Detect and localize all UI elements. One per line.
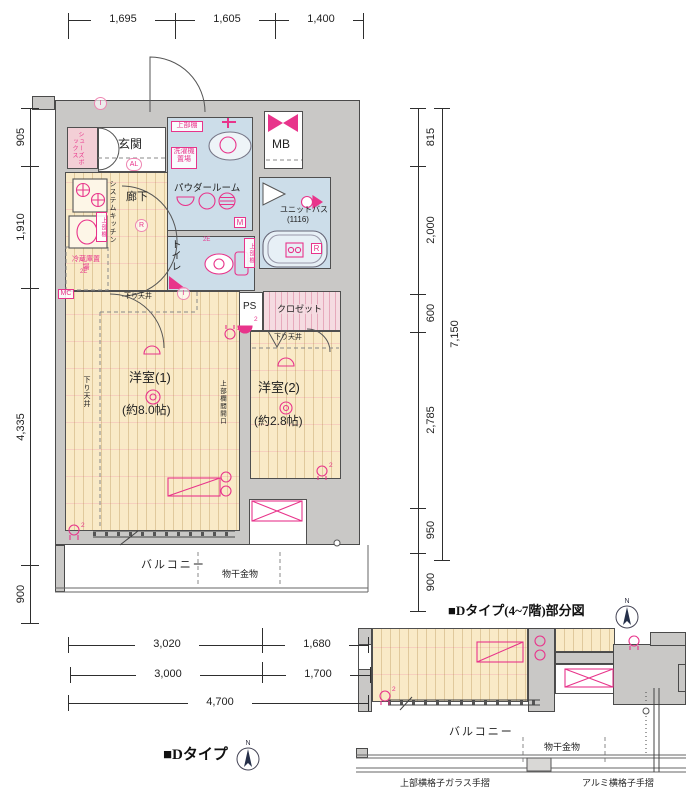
label-washer-place: 洗濯機置場 [171,147,197,169]
label-transom-opening: 上部欄間開口 [218,380,225,432]
label-closet: クロゼット [277,304,322,314]
dim-label: 1,400 [289,13,353,25]
dim-label-total: 7,150 [449,316,463,352]
balcony-left-wall [55,545,65,592]
dim-label: 1,910 [15,209,29,245]
sub-room2-wall [555,652,615,664]
sub-label-railing-left: 上部横格子ガラス手摺 [400,778,490,788]
sub-ac-alcove [555,664,615,694]
label-upper-shelf: 上部棚 [171,121,203,132]
label-shoes-box: シューズボックス [71,129,83,168]
dim-label: 900 [425,564,439,600]
label-hallway: 廊下 [126,191,148,204]
sub-right-notch [678,664,686,692]
compass-icon: N [233,738,263,774]
floorplan-page: 2 2 2 2 2 1,695 1,605 1,400 905 1,910 4,… [0,0,686,800]
dim-label: 2,785 [425,402,439,438]
dim-label: 950 [425,512,439,548]
room-powder [167,117,253,231]
svg-text:N: N [624,598,629,605]
marker-2e: 2E [203,237,210,244]
subplan-title: ■Dタイプ(4~7階)部分図 [448,604,585,619]
label-unit-bath: ユニットバス [280,205,328,214]
label-lowered-ceiling: 下り天井 [274,334,302,342]
sub-rail-endblock [356,748,368,758]
dim-label: 3,000 [136,668,200,680]
sub-mid-wall [528,628,555,712]
label-ps: PS [243,301,256,313]
dim-label: 1,695 [91,13,155,25]
dim-label: 1,605 [195,13,259,25]
dim-label-total: 4,700 [188,696,252,708]
sub-hook-symbol [643,708,649,714]
marker-m: M [234,217,246,228]
svg-text:N: N [245,740,250,747]
label-room2-size: (約2.8帖) [254,415,303,429]
sub-right-step [650,632,686,646]
label-balcony: バルコニー [141,559,206,572]
dim-label: 4,335 [15,409,29,445]
sub-label-railing-right: アルミ横格子手摺 [582,778,654,788]
sub-room1 [372,628,528,702]
marker-2e: 2E [80,269,87,276]
label-lowered-ceiling: 下り天井 [83,376,90,410]
compass-icon: N [612,596,642,632]
marker-i: I [94,97,107,110]
balcony-area [65,546,365,586]
label-room1-size: (約8.0帖) [122,404,171,418]
sub-railing-lines [356,755,686,772]
dim-label: 1,700 [286,668,350,680]
marker-i: I [177,287,190,300]
sub-label-drying-hardware: 物干金物 [544,742,580,752]
label-unit-bath-size: (1116) [287,215,309,224]
label-powder-room: パウダールーム [174,184,240,195]
sub-railing-block [527,758,551,771]
dim-label: 905 [15,119,29,155]
marker-r: R [311,243,322,254]
label-room1: 洋室(1) [129,371,171,386]
dim-label: 600 [425,295,439,331]
label-room2: 洋室(2) [258,381,300,396]
label-genkan: 玄関 [118,138,142,152]
room-yoshitsu2 [250,331,341,479]
label-toilet: トイレ [169,239,179,283]
dim-label: 1,680 [285,638,349,650]
sub-room2 [555,628,615,652]
sub-label-balcony: バルコニー [449,726,514,739]
sub-right-mass [613,644,686,705]
plan-type-label: ■Dタイプ [163,747,228,764]
dim-label: 815 [425,119,439,155]
marker-r: R [135,219,148,232]
label-upper-shelf: 上部棚 [244,238,255,268]
dim-label: 3,020 [135,638,199,650]
label-system-kitchen: システムキッチン [109,180,116,248]
label-upper-shelf: 上部棚 [96,212,107,242]
ac-alcove [249,499,307,545]
label-drying-hardware: 物干金物 [222,569,258,579]
label-lowered-ceiling: 下り天井 [124,293,152,301]
dim-label: 2,000 [425,212,439,248]
room-toilet [167,236,255,291]
marker-mc: MC [58,289,74,299]
marker-al: AL [126,158,142,171]
label-mb: MB [272,138,290,152]
dim-label: 900 [15,576,29,612]
